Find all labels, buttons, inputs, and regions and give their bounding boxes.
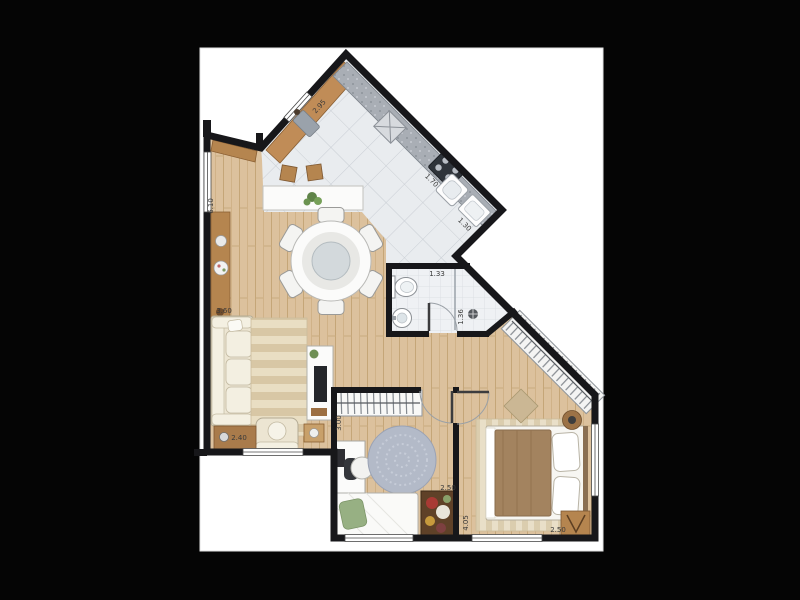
dim-living-sideboard: 2.40 <box>231 434 247 442</box>
decor-flowers-icon <box>214 261 228 275</box>
nightstand <box>563 411 582 430</box>
wall-stub <box>256 133 263 149</box>
bedrooms-shared-wall <box>453 423 459 540</box>
dim-bedroom1-width: 2.50 <box>550 526 566 534</box>
stool <box>280 165 297 182</box>
floor-plan-screenshot: 2.95 1.70 1.30 1.33 1.36 6.10 3.60 2.40 … <box>0 0 800 600</box>
decor-box <box>311 408 327 416</box>
green-pillow <box>338 498 367 530</box>
dim-living-width: 3.60 <box>216 307 232 315</box>
dining-chair <box>318 208 344 223</box>
tv-rack <box>307 346 333 420</box>
pillow <box>552 432 581 472</box>
pillow <box>552 476 581 516</box>
headboard <box>583 426 588 520</box>
plant-icon <box>310 350 319 359</box>
sofa <box>211 316 253 426</box>
decor-plate <box>216 236 227 247</box>
bathroom-wall-left <box>386 263 392 337</box>
flower-pouf <box>421 491 455 536</box>
floor-plan-image: 2.95 1.70 1.30 1.33 1.36 6.10 3.60 2.40 … <box>0 0 800 600</box>
stool <box>306 164 323 181</box>
tv-icon <box>314 366 327 402</box>
throw-pillow <box>227 319 242 332</box>
wall-stub <box>194 449 207 456</box>
decor-dish <box>220 433 229 442</box>
round-rug <box>368 426 436 494</box>
toilet-icon <box>389 276 417 298</box>
decor-dish <box>310 429 319 438</box>
bathroom-wall-bottom <box>386 331 429 337</box>
single-bed <box>334 493 418 537</box>
lamp-icon <box>568 416 576 424</box>
bathroom-wall-bottom-right <box>457 331 489 337</box>
shower-icon <box>468 309 478 319</box>
dim-bathroom-width: 1.33 <box>429 270 445 278</box>
dim-bedroom2-length: 3.00 <box>335 415 343 431</box>
dim-bedroom1-length: 4.05 <box>462 515 470 531</box>
dim-living-length: 6.10 <box>207 198 215 214</box>
flower-dot <box>217 264 220 267</box>
dim-bathroom-shower: 1.36 <box>457 309 465 325</box>
dining-chair <box>318 300 344 315</box>
bathroom-wall-top <box>386 263 470 269</box>
flower-dot <box>222 268 225 271</box>
dining-table <box>312 242 350 280</box>
double-bed <box>486 426 588 520</box>
kitchen-decor-icon <box>294 109 300 115</box>
armchair <box>256 418 298 452</box>
dim-bedroom2-width: 2.50 <box>440 484 456 492</box>
wardrobe <box>334 390 422 416</box>
wall-stub <box>203 120 211 137</box>
bedroom2-wall-top <box>331 387 421 393</box>
